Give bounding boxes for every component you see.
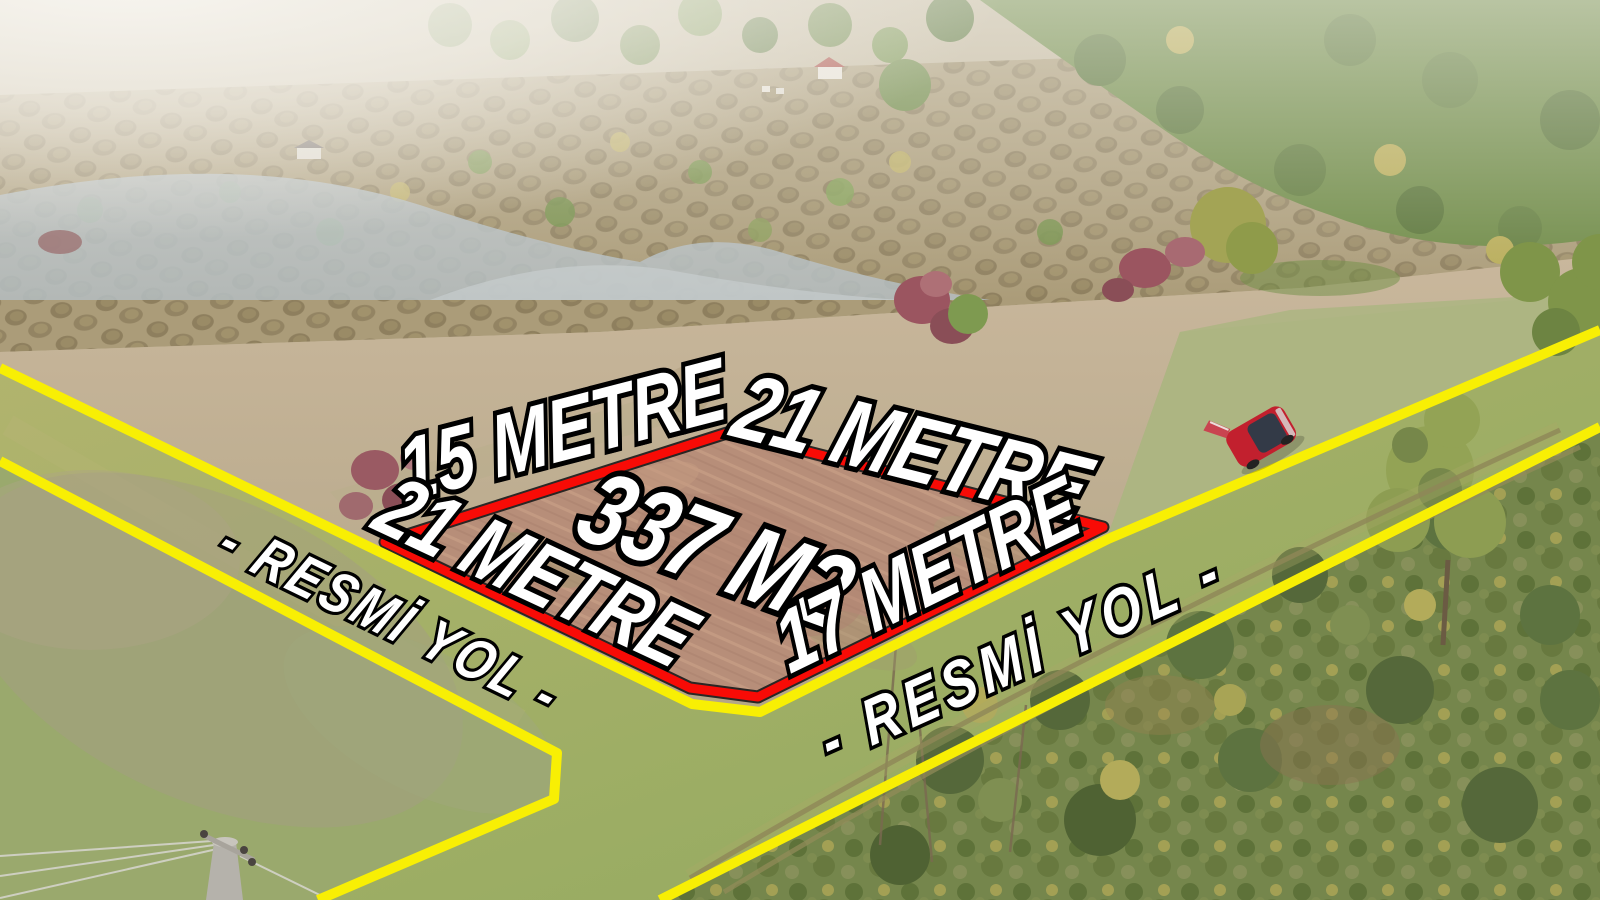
aerial-photo-background <box>0 0 1600 900</box>
aerial-land-listing-photo: 15 METRE 15 METRE 21 METRE 21 METRE 337 … <box>0 0 1600 900</box>
